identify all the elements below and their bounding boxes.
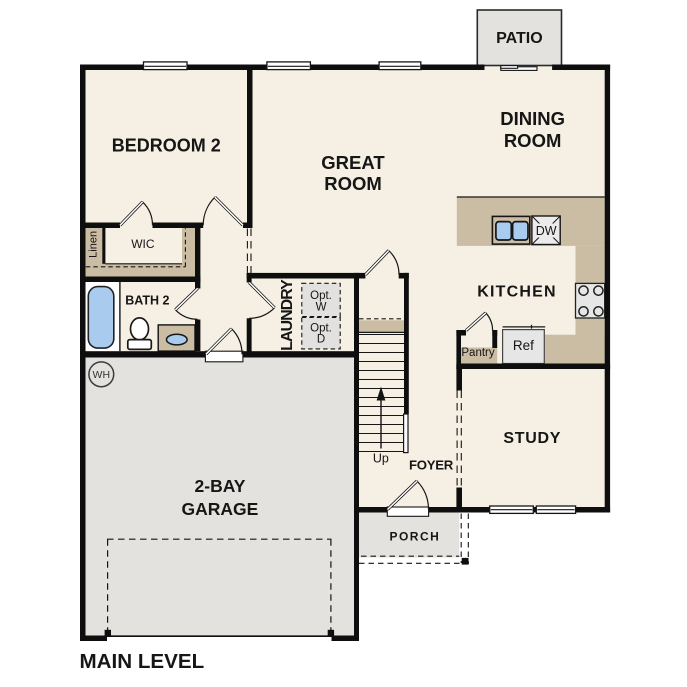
svg-text:STUDY: STUDY	[503, 430, 561, 447]
svg-text:Opt.: Opt.	[310, 290, 332, 302]
svg-text:Up: Up	[373, 452, 389, 466]
svg-text:BEDROOM 2: BEDROOM 2	[112, 136, 221, 156]
svg-text:GARAGE: GARAGE	[181, 499, 258, 519]
svg-text:W: W	[316, 302, 327, 314]
svg-text:Ref: Ref	[513, 338, 534, 353]
svg-text:ROOM: ROOM	[324, 173, 382, 194]
svg-text:WH: WH	[93, 369, 111, 381]
svg-text:Pantry: Pantry	[461, 347, 494, 359]
svg-text:MAIN LEVEL: MAIN LEVEL	[80, 650, 205, 673]
svg-text:KITCHEN: KITCHEN	[477, 283, 557, 300]
svg-text:WIC: WIC	[131, 237, 155, 251]
svg-text:BATH 2: BATH 2	[125, 294, 169, 308]
svg-text:Opt.: Opt.	[310, 322, 332, 334]
svg-text:PORCH: PORCH	[389, 530, 440, 544]
svg-text:Linen: Linen	[88, 231, 100, 258]
svg-text:FOYER: FOYER	[409, 457, 454, 472]
svg-text:ROOM: ROOM	[504, 130, 562, 151]
svg-text:DINING: DINING	[500, 108, 565, 129]
svg-text:LAUNDRY: LAUNDRY	[279, 279, 296, 351]
svg-text:D: D	[317, 334, 325, 346]
svg-text:DW: DW	[536, 224, 557, 238]
svg-text:GREAT: GREAT	[321, 152, 385, 173]
svg-text:2-BAY: 2-BAY	[195, 476, 246, 496]
svg-text:PATIO: PATIO	[496, 30, 543, 47]
